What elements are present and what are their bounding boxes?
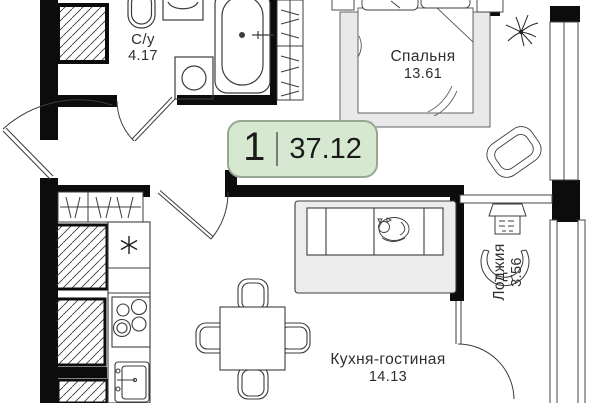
sofa-icon [295, 201, 456, 293]
shelf-icon [163, 0, 203, 20]
bathtub-icon [215, 0, 274, 93]
armchair-icon [482, 122, 546, 183]
nightstand-icon [477, 0, 503, 12]
nightstand-icon [332, 0, 354, 10]
loggia-divider-window [460, 195, 552, 203]
badge-divider [276, 132, 278, 166]
table-icon [220, 307, 285, 370]
bathroom-fixtures [58, 0, 274, 99]
hall-wardrobe-icon [58, 192, 143, 222]
bed-icon [340, 8, 490, 127]
cabinet-icon [55, 299, 105, 365]
washbasin-icon [175, 57, 213, 99]
bedroom-wardrobe-icon [277, 0, 303, 100]
loggia-door-arc [456, 301, 514, 399]
loggia-table-icon [489, 204, 526, 234]
loggia-furniture [481, 204, 529, 286]
bathroom-door-arc [117, 97, 175, 141]
stove-icon [112, 297, 150, 347]
bedroom-window [550, 22, 578, 180]
washing-machine-icon [58, 5, 107, 62]
loggia-chair-icon [481, 250, 529, 286]
dining-set [196, 279, 310, 399]
toilet-icon [128, 0, 155, 28]
chair-icon [238, 366, 268, 399]
loggia-glazing [550, 220, 585, 403]
total-area: 37.12 [289, 133, 362, 166]
kitchen-sink-icon [115, 362, 149, 402]
floor-plan-drawing [0, 0, 605, 403]
rooms-count: 1 [243, 125, 265, 170]
cabinet-icon [58, 380, 107, 403]
plant-icon [506, 15, 538, 46]
apartment-summary-badge: 1 37.12 [227, 120, 378, 178]
cabinet-icon [55, 225, 107, 289]
livingroom-door-arc [158, 191, 228, 240]
floor-plan: С/у 4.17 Спальня 13.61 Кухня-гостиная 14… [0, 0, 605, 403]
